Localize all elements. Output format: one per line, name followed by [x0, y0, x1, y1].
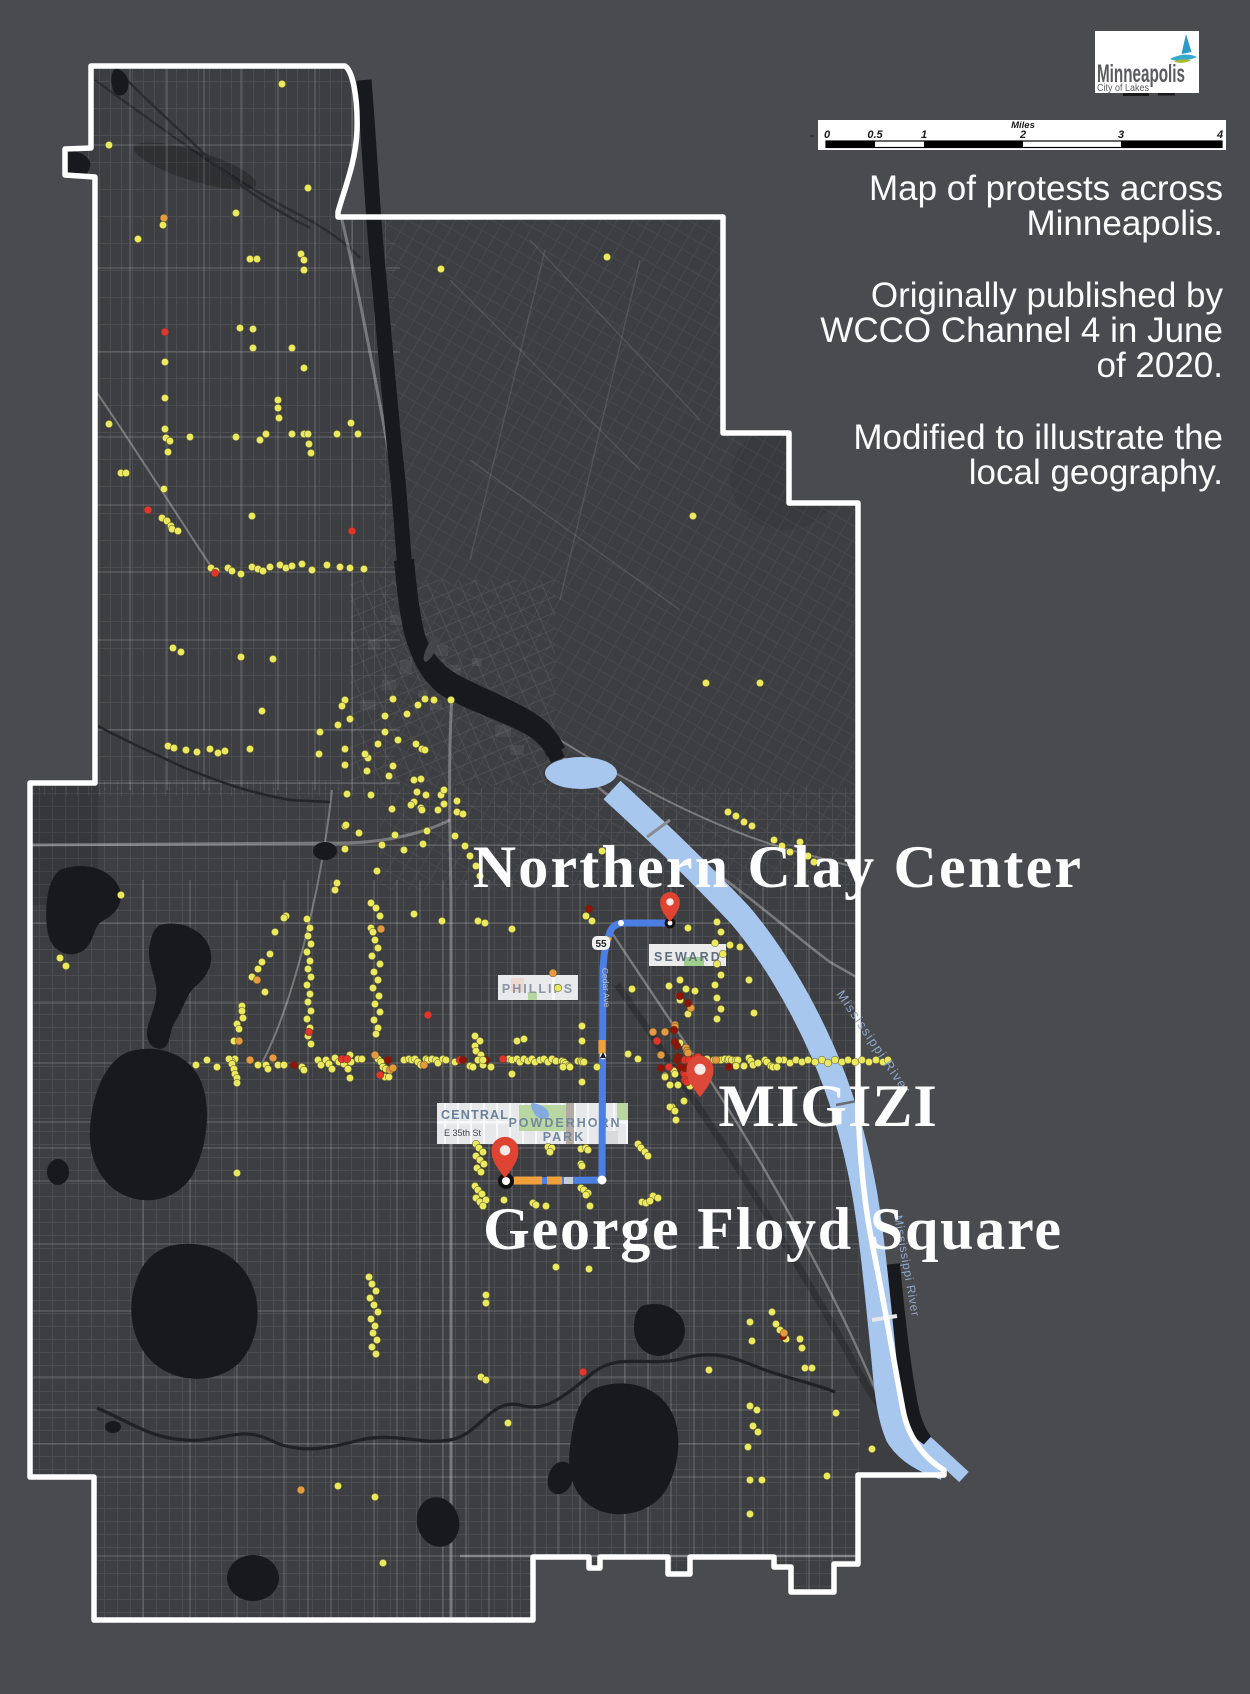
svg-text:1: 1 — [921, 129, 927, 141]
svg-text:CENTRAL: CENTRAL — [441, 1108, 509, 1122]
svg-text:Originally published by: Originally published by — [871, 276, 1224, 315]
svg-text:WCCO Channel 4 in June: WCCO Channel 4 in June — [820, 311, 1223, 350]
svg-text:SEWARD: SEWARD — [654, 950, 722, 964]
svg-text:E 35th St: E 35th St — [444, 1128, 482, 1138]
svg-text:Northern Clay Center: Northern Clay Center — [473, 834, 1084, 900]
svg-text:0.5: 0.5 — [867, 129, 883, 141]
svg-text:4: 4 — [1216, 129, 1223, 141]
svg-text:Map of protests across: Map of protests across — [869, 169, 1223, 208]
svg-text:local geography.: local geography. — [969, 453, 1223, 492]
svg-text:of 2020.: of 2020. — [1097, 346, 1224, 385]
svg-text:Cedar Ave: Cedar Ave — [600, 968, 612, 1008]
svg-text:Minneapolis.: Minneapolis. — [1027, 204, 1224, 243]
svg-text:City of Lakes: City of Lakes — [1097, 83, 1149, 94]
svg-text:PARK: PARK — [543, 1130, 586, 1144]
svg-text:Miles: Miles — [1011, 120, 1035, 131]
svg-text:Modified to illustrate the: Modified to illustrate the — [853, 418, 1223, 457]
svg-text:George Floyd Square: George Floyd Square — [483, 1196, 1063, 1262]
svg-text:3: 3 — [1118, 129, 1124, 141]
svg-text:0: 0 — [824, 129, 831, 141]
svg-text:55: 55 — [595, 939, 607, 950]
svg-text:PHILLIPS: PHILLIPS — [502, 982, 574, 996]
svg-text:MIGIZI: MIGIZI — [718, 1073, 937, 1139]
